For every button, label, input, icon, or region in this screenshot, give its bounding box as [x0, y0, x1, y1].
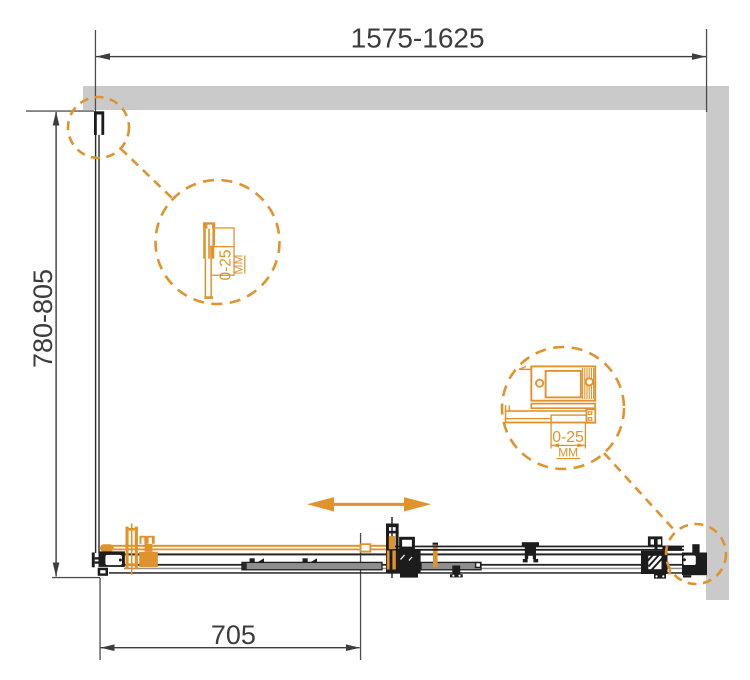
svg-text:0-25: 0-25: [552, 429, 584, 446]
svg-text:705: 705: [211, 620, 256, 650]
svg-text:780-805: 780-805: [28, 269, 58, 368]
svg-text:ММ: ММ: [232, 255, 246, 275]
svg-text:ММ: ММ: [558, 446, 578, 460]
svg-text:1575-1625: 1575-1625: [351, 22, 485, 53]
